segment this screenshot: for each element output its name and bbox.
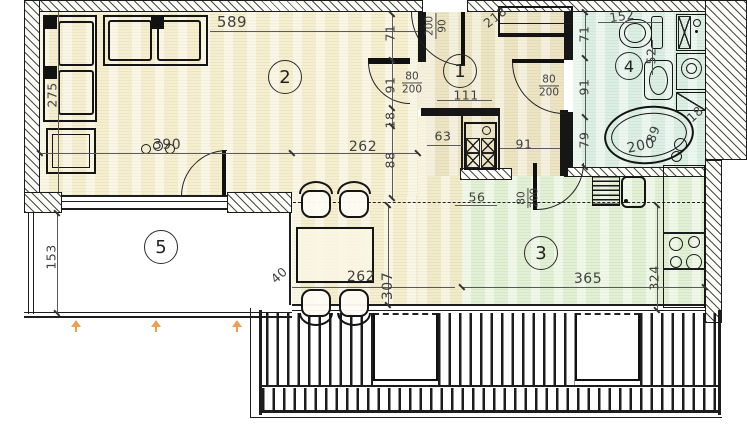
door-height: 200	[539, 87, 559, 99]
railing-bars-2	[438, 313, 575, 385]
bathtub-faucet	[671, 151, 682, 162]
door-height: 200	[402, 84, 422, 96]
dim-label: 56	[469, 190, 486, 205]
sofa-cushion	[108, 20, 152, 61]
wall-right-block	[705, 0, 747, 160]
dim-label: 91	[516, 137, 533, 152]
balcony-outline-h	[250, 417, 722, 418]
cabinet-cell	[466, 138, 480, 153]
wall-top-left	[24, 0, 423, 12]
balcony-outline-v	[250, 308, 251, 418]
sofa-cushion	[58, 70, 94, 115]
sofa-cushion	[58, 21, 94, 66]
terrace-anchor	[150, 320, 162, 333]
sofa-armrest	[44, 66, 57, 79]
dining-chair	[337, 181, 371, 219]
anchor-stem	[155, 327, 158, 332]
sink-drain	[624, 199, 628, 203]
dim-label: 79	[577, 132, 592, 149]
cabinet-cell	[466, 153, 480, 168]
dim-label: 40	[268, 264, 291, 286]
dim-label: 18	[383, 112, 398, 129]
door-height: 200	[423, 13, 436, 39]
balcony-mid-rail	[259, 385, 721, 387]
room-number-living: 2	[268, 60, 302, 94]
anchor-stem	[236, 327, 239, 332]
balcony-frame-right	[718, 310, 721, 415]
cabinet-cell	[481, 138, 495, 153]
dish-rack	[592, 176, 620, 206]
dim-label: 153	[44, 244, 59, 269]
dim-label: 71	[577, 26, 592, 43]
room-number-hallway: 1	[443, 54, 477, 88]
dim-label: 91	[383, 77, 398, 94]
window-pier-left	[24, 192, 62, 213]
kitchen-sink	[621, 176, 646, 208]
railing-opening-1	[373, 313, 438, 381]
dim-label: 52	[644, 48, 659, 65]
wardrobe	[498, 6, 573, 37]
dim-label: 324	[647, 265, 662, 290]
counter-divider	[663, 232, 705, 234]
chair-seat	[301, 289, 331, 317]
stove-burner	[688, 236, 700, 248]
terrace-left-a	[28, 213, 29, 314]
door-height: 200	[529, 188, 541, 208]
railing-opening-2	[575, 313, 640, 381]
terrace-bottom-b	[24, 316, 292, 318]
bath-door-size-label: 80 200	[539, 73, 559, 98]
dim-label: 275	[45, 82, 60, 107]
dim-chain	[657, 205, 658, 310]
wardrobe-divider	[500, 23, 571, 24]
dining-chair	[337, 288, 371, 326]
room-number-bathroom: 4	[615, 52, 643, 80]
chair-seat	[301, 190, 331, 218]
dim-label: 111	[453, 88, 478, 103]
railing-bars-lower	[262, 388, 718, 410]
dim-label: 262	[349, 139, 377, 155]
entry-door-size-label: 200 90	[423, 13, 448, 39]
stove-burner	[669, 237, 683, 251]
anchor-stem	[75, 327, 78, 332]
niche-side-line	[461, 116, 463, 170]
door-size-label: 80 200	[402, 70, 422, 95]
utility-hatch-cell	[678, 16, 691, 49]
dim-label: 365	[574, 271, 602, 287]
dim-chain	[462, 287, 705, 288]
dim-label: 390	[153, 137, 181, 153]
railing-bars-3	[640, 313, 718, 385]
terrace-anchor	[231, 320, 243, 333]
dim-label: 88	[383, 152, 398, 169]
dim-chain	[455, 205, 497, 206]
toilet-bowl-inner	[624, 23, 646, 43]
door-width: 80	[539, 73, 558, 86]
anchor-cap	[232, 320, 242, 327]
door-width: 80	[402, 70, 421, 83]
terrace-bottom-a	[24, 312, 292, 313]
utility-dot	[695, 30, 698, 33]
dim-label: 589	[217, 13, 247, 31]
bathtub-faucet	[674, 138, 687, 151]
door-width: 80	[515, 188, 528, 207]
dim-label: 307	[380, 272, 396, 300]
wall-left	[24, 0, 40, 207]
dining-chair	[299, 181, 333, 219]
dim-chain	[392, 14, 393, 198]
chair-seat	[339, 190, 369, 218]
utility-knob	[693, 19, 701, 27]
terrace-right-edge	[289, 213, 291, 305]
kitchen-door-size-label: 80 200	[515, 188, 540, 208]
stove-burner	[686, 254, 702, 270]
cabinet-knob	[482, 126, 491, 135]
dim-chain	[427, 145, 462, 146]
sofa-armrest	[44, 16, 57, 29]
wall-niche-top	[421, 108, 500, 116]
room-number-terrace: 5	[144, 230, 178, 264]
sofa-armrest	[151, 16, 164, 29]
anchor-cap	[71, 320, 81, 327]
dim-label: 71	[383, 25, 398, 42]
dim-chain	[292, 287, 455, 288]
terrace-left-b	[33, 213, 34, 314]
cabinet-cell	[481, 153, 495, 168]
dim-label: 91	[577, 79, 592, 96]
stove-burner	[670, 256, 682, 268]
balcony-bottom-rail	[259, 410, 721, 413]
dining-chair	[299, 288, 333, 326]
wall-right	[705, 160, 722, 323]
terrace-anchor	[70, 320, 82, 333]
room-number-kitchen: 3	[524, 236, 558, 270]
dim-label: 63	[435, 129, 452, 144]
anchor-cap	[151, 320, 161, 327]
floor-plan: 589 275 390 262 71 91 18 88 80 200 63 11…	[0, 0, 747, 426]
washer-drum-inner	[686, 63, 697, 74]
chair-seat	[339, 289, 369, 317]
dim-label: 262	[347, 269, 375, 285]
door-width: 90	[437, 19, 449, 32]
